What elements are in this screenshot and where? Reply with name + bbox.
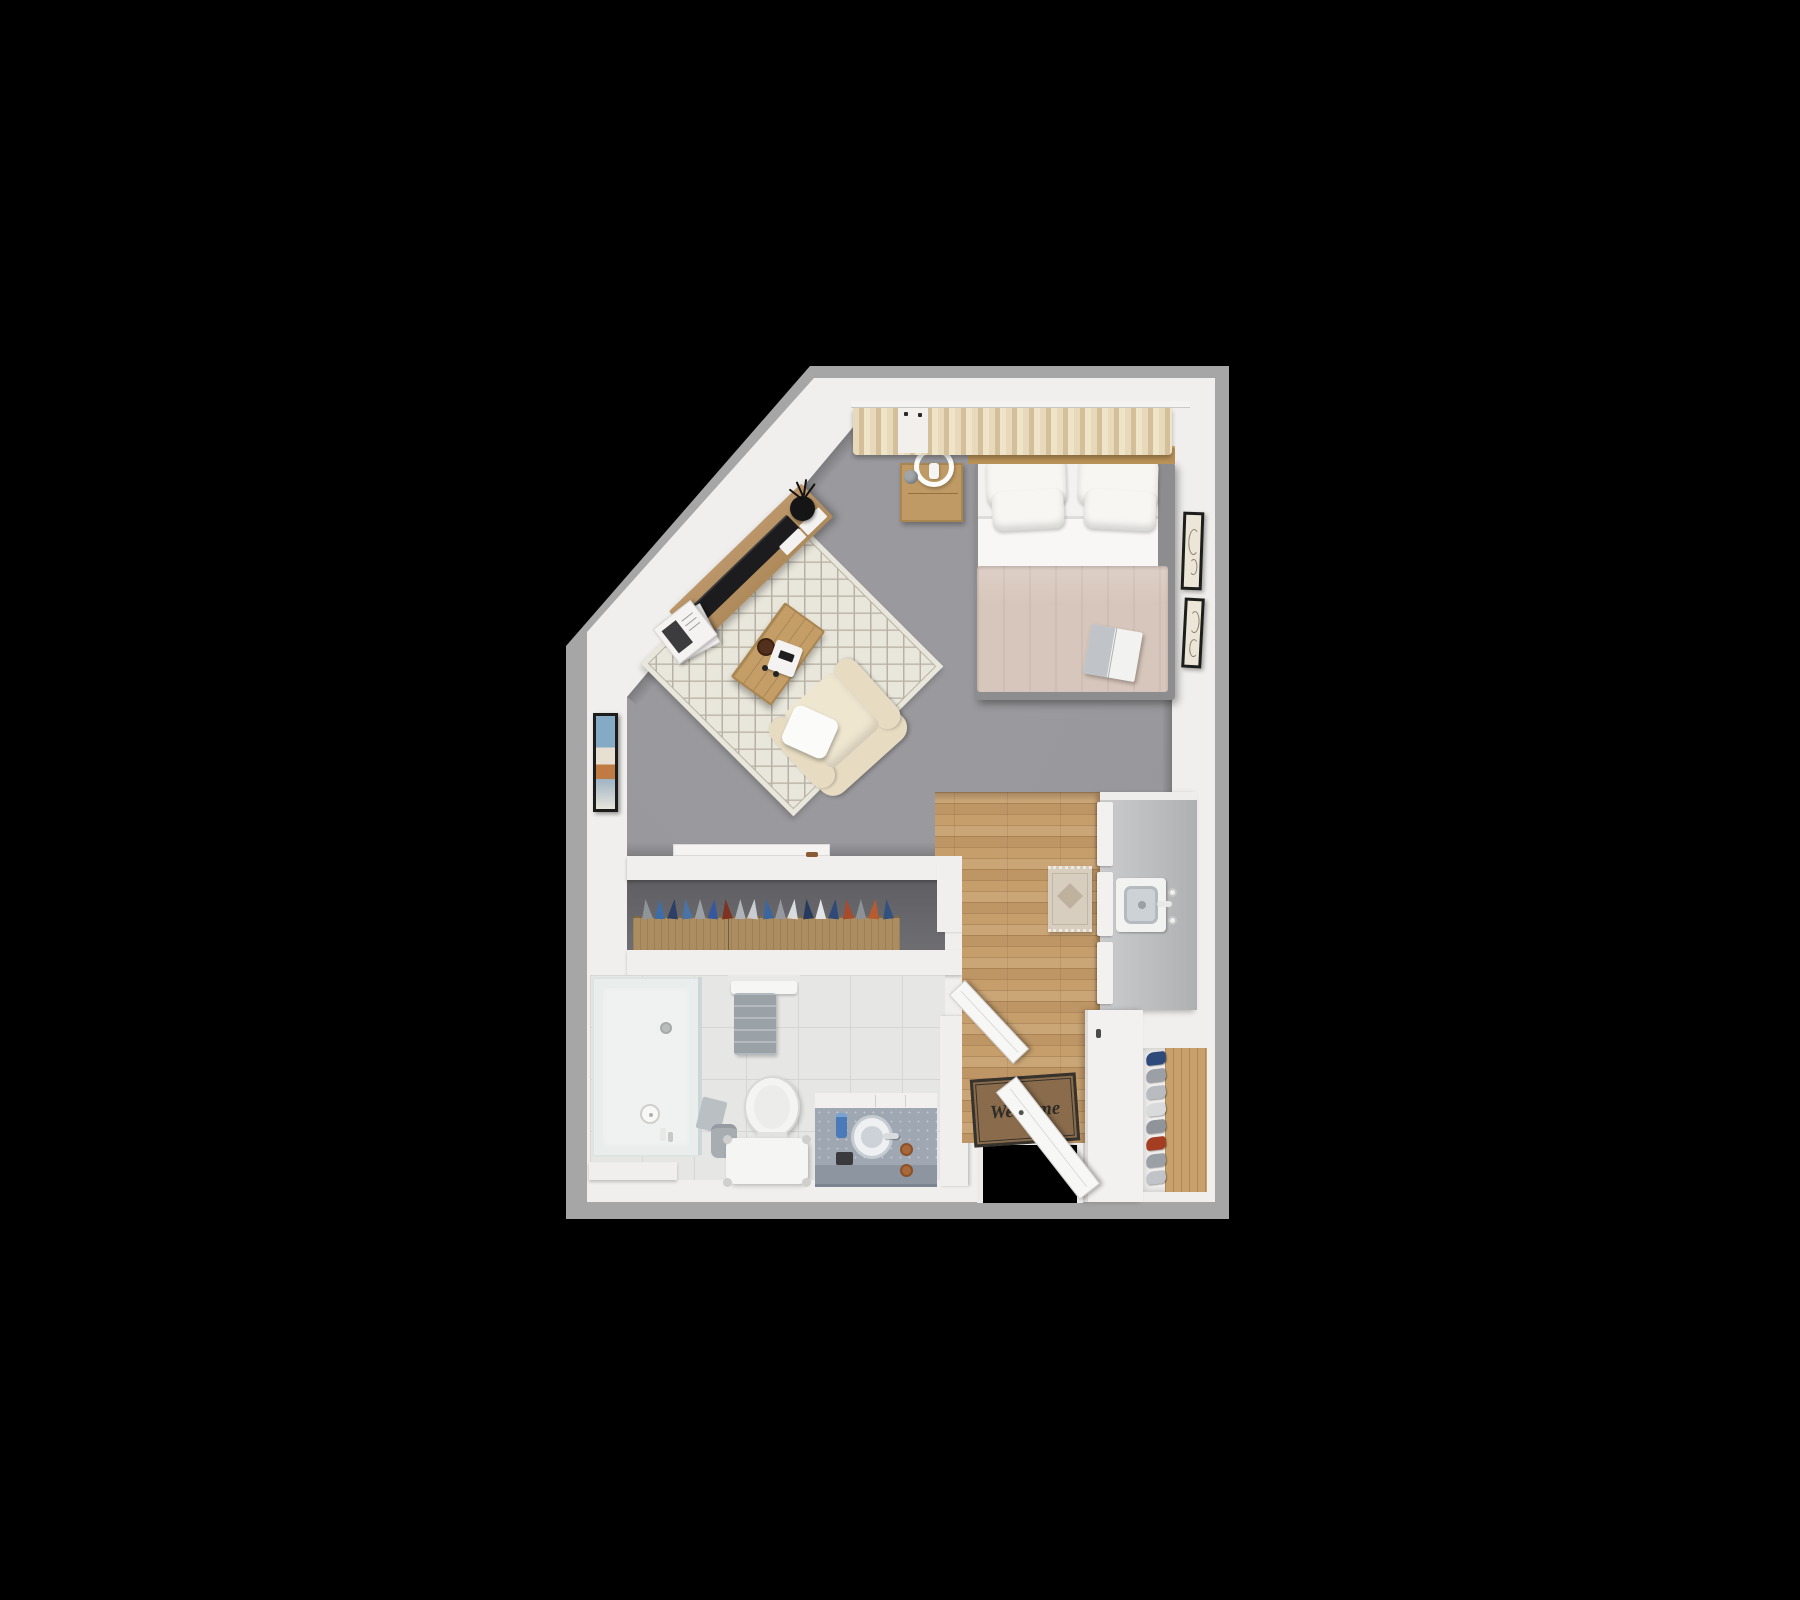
vanity-seam: [875, 1095, 876, 1107]
toilet: [744, 1076, 800, 1138]
stool-leg: [723, 1178, 732, 1187]
partition-wall-kitchen-upper: [937, 856, 962, 932]
gray-towel: [734, 993, 776, 1055]
wall-art-right-upper: [1181, 512, 1205, 591]
ledge-handle: [806, 852, 818, 857]
bed-duvet: [977, 566, 1168, 692]
decor-sphere: [904, 470, 918, 484]
cabinet-door-front: [1097, 802, 1113, 866]
partition-wall-living-closet: [627, 856, 962, 880]
art-line: [1188, 529, 1200, 555]
stool-leg: [723, 1135, 732, 1144]
magazine-text-line: [689, 622, 701, 631]
window-handle: [918, 413, 922, 417]
shower-head: [640, 1104, 660, 1124]
entry-cabinet-handle: [1096, 1029, 1101, 1038]
coaster: [762, 665, 768, 671]
nightstand-vase: [929, 463, 939, 479]
curtain-rail: [851, 401, 1190, 408]
shoe-rack-shelf: [1165, 1048, 1207, 1192]
art-line: [1189, 639, 1199, 657]
window-sill: [898, 408, 928, 453]
toothbrush-cup: [836, 1113, 847, 1138]
bathroom-faucet: [883, 1133, 899, 1139]
entry-cabinet: [1085, 1010, 1143, 1202]
wall-art-left: [593, 713, 618, 812]
kitchen-faucet-spout: [1157, 901, 1172, 907]
art-line: [1189, 611, 1200, 633]
closet-dresser: [633, 916, 900, 950]
wall-art-right-lower: [1181, 598, 1205, 669]
shower-curb: [589, 1162, 677, 1180]
vanity-seam: [905, 1095, 906, 1107]
tv-remote: [778, 650, 795, 663]
art-line: [1189, 559, 1198, 575]
kitchen-counter-edge: [1100, 792, 1197, 800]
bathroom-stool: [726, 1138, 808, 1184]
bed-pillow: [1083, 488, 1157, 532]
coaster: [773, 671, 779, 677]
stool-leg: [802, 1135, 811, 1144]
living-bedroom-carpet: [0, 0, 1800, 1600]
book-on-bed: [1083, 624, 1143, 682]
soap-dispenser: [900, 1143, 913, 1156]
window-handle: [904, 412, 908, 416]
partition-wall-closet-bathroom: [627, 950, 962, 975]
faucet-knob: [1168, 888, 1177, 897]
closet-dresser-seam: [728, 916, 729, 950]
cabinet-door-front: [1097, 942, 1113, 1004]
toilet-lid: [754, 1085, 790, 1129]
faucet-knob: [1168, 916, 1177, 925]
bed-pillow: [991, 488, 1065, 532]
vanity-front: [815, 1165, 937, 1187]
lotion-dispenser: [900, 1164, 913, 1177]
vanity-tray: [836, 1152, 853, 1165]
shower-drain: [660, 1022, 672, 1034]
sink-basin: [861, 1126, 883, 1148]
cabinet-door-front: [1097, 872, 1113, 936]
shampoo-bottle: [660, 1128, 666, 1141]
stool-leg: [802, 1178, 811, 1187]
shower-enclosure: [592, 977, 700, 1157]
nightstand-drawer-line: [908, 493, 958, 494]
kitchen-runner-rug: [1048, 866, 1092, 932]
vanity-backsplash: [815, 1093, 937, 1109]
soap-bottle: [668, 1132, 673, 1142]
shower-head-nozzle: [649, 1113, 653, 1117]
floor-plan-canvas: Welcome HOME: [0, 0, 1800, 1600]
door-handle: [1018, 1109, 1025, 1116]
kitchen-sink-drain: [1138, 901, 1146, 909]
